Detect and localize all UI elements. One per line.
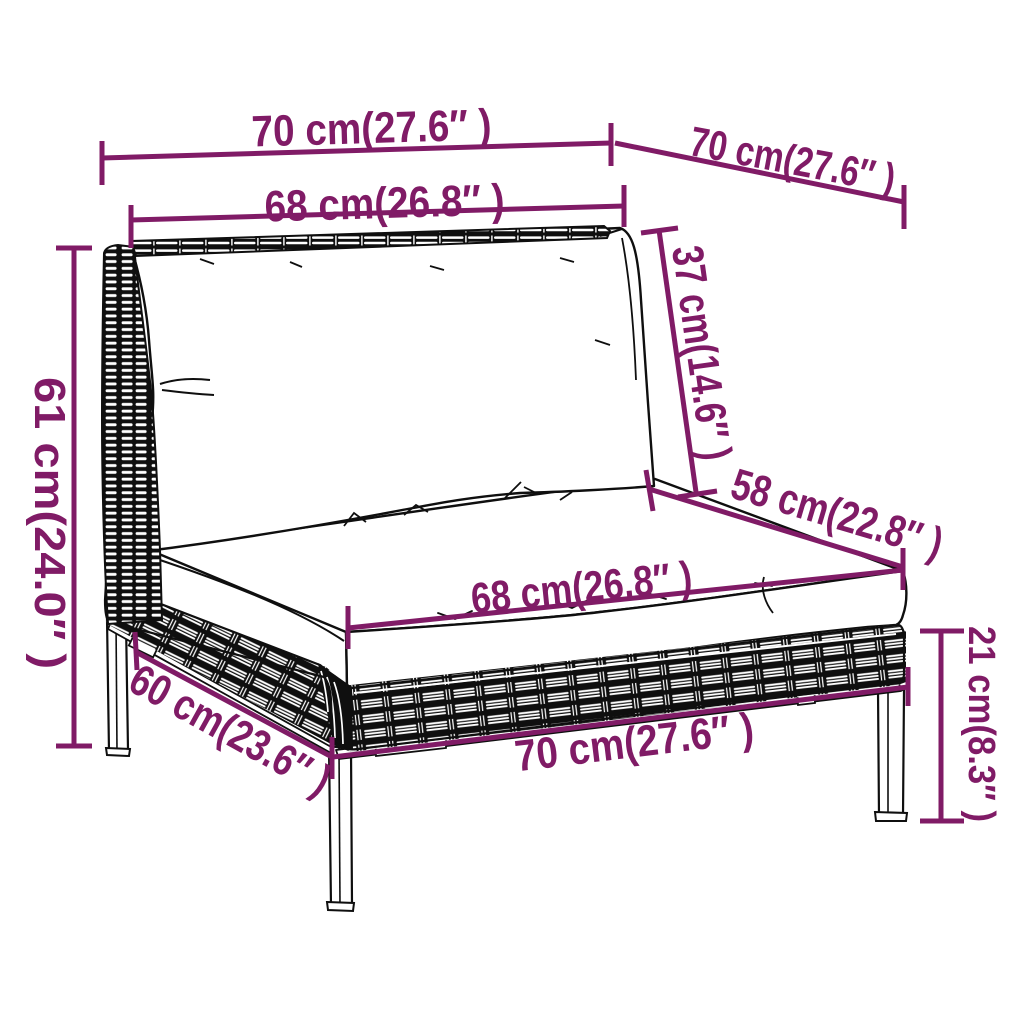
svg-text:68 cm(26.8″ ): 68 cm(26.8″ ) [264, 175, 505, 231]
svg-text:21 cm(8.3″ ): 21 cm(8.3″ ) [960, 626, 1002, 822]
svg-text:70 cm(27.6″ ): 70 cm(27.6″ ) [251, 100, 492, 156]
svg-text:61 cm(24.0″ ): 61 cm(24.0″ ) [25, 377, 74, 669]
